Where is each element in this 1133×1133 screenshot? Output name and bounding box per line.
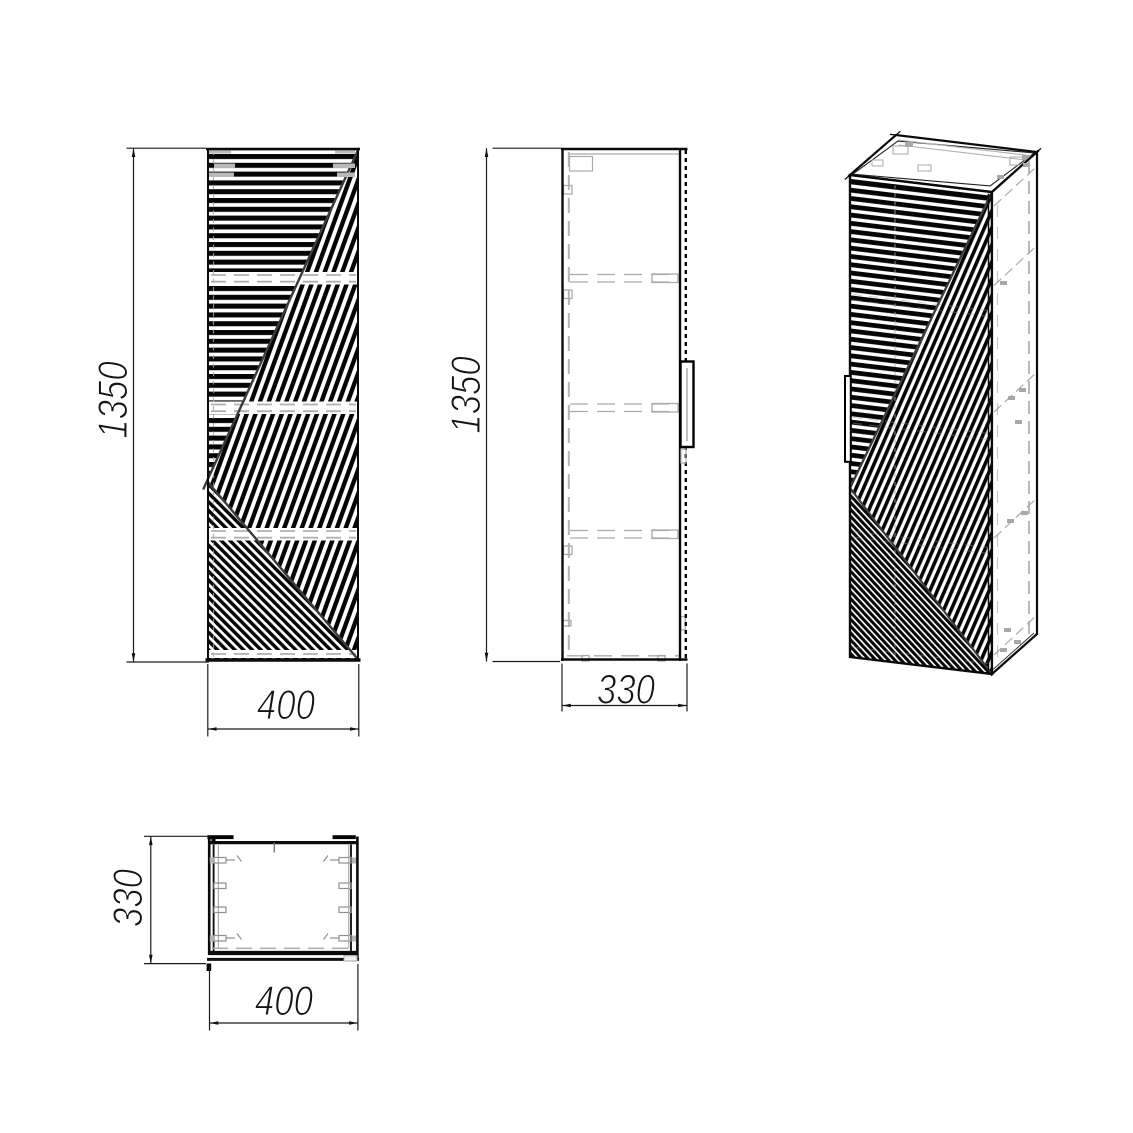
svg-text:1350: 1350 xyxy=(90,361,137,439)
svg-text:1350: 1350 xyxy=(443,356,490,434)
svg-text:330: 330 xyxy=(597,667,656,714)
svg-text:330: 330 xyxy=(105,868,152,927)
svg-text:400: 400 xyxy=(255,978,314,1025)
svg-text:400: 400 xyxy=(257,682,316,729)
